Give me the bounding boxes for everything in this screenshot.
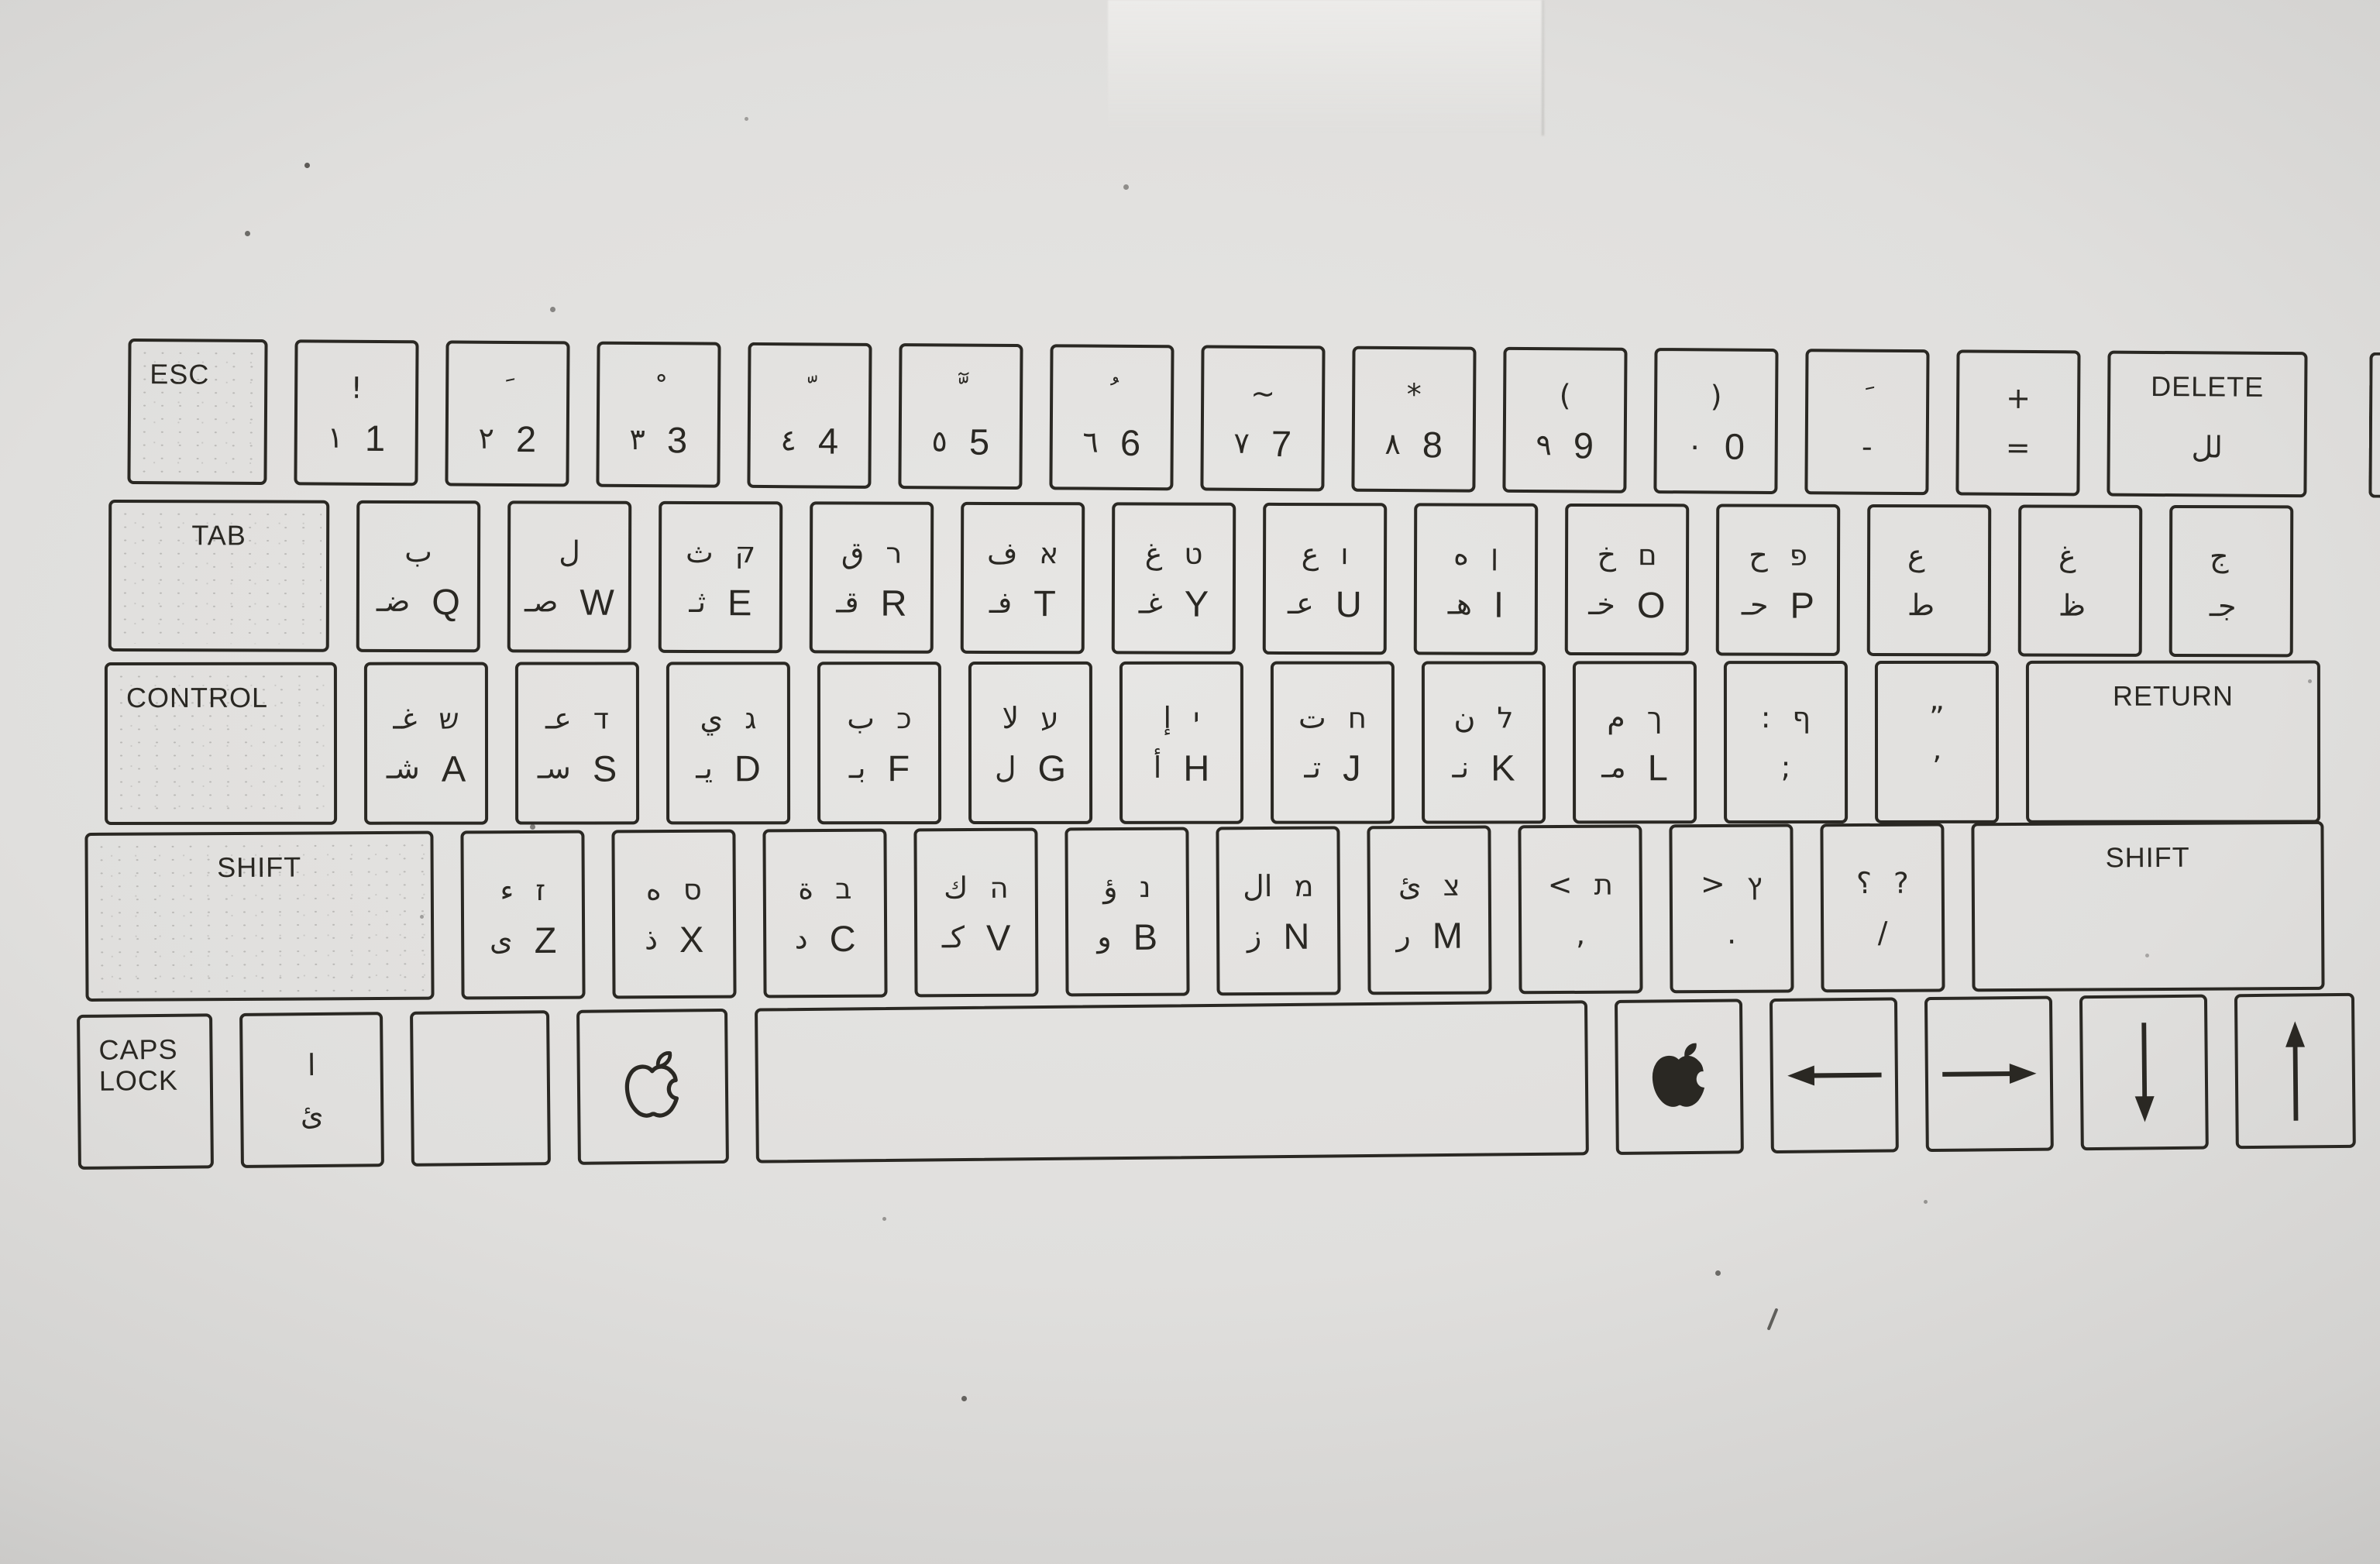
key-top-legends: الמ <box>1219 868 1337 906</box>
key-top-legends: ّٓ <box>902 373 1020 411</box>
key-4: ّ٤4 <box>747 342 872 489</box>
key-right-bracket-bottom-left-legend: ظ <box>2058 591 2086 620</box>
key-top-legends: هס <box>615 871 733 909</box>
key-left-bracket-bottom-left-legend: ط <box>1907 590 1935 620</box>
key-v-bottom-right-legend: V <box>986 919 1011 955</box>
key-l: مךمـL <box>1573 661 1697 823</box>
key-i-bottom-right-legend: I <box>1494 586 1504 622</box>
keyboard-row: ESC!١1 َ٢2 ْ٣3 ّ٤4 ّٓ٥5 ُ٦6~٧7*٨8(٩9)٠0 … <box>127 339 2380 498</box>
key-slash-top-right-legend: ? <box>1893 868 1909 897</box>
key-top-legends: ثק <box>662 534 779 571</box>
key-equals-top-left-legend: + <box>2006 383 2031 413</box>
key-bottom-legends: جـ <box>2172 587 2290 624</box>
key-return: RETURN <box>2026 661 2320 823</box>
key-h-bottom-left-legend: أ <box>1154 753 1162 782</box>
key-6: ُ٦6 <box>1049 344 1174 490</box>
key-top-legends: ئצ <box>1371 867 1488 905</box>
key-5-bottom-right-legend: 5 <box>969 423 989 459</box>
key-comma-bottom-left-legend: , <box>1576 919 1585 949</box>
key-7-top-left-legend: ~ <box>1250 379 1275 408</box>
key-top-legends: + <box>1959 379 2077 417</box>
key-7-bottom-right-legend: 7 <box>1271 425 1291 462</box>
key-alef: ائ <box>239 1012 384 1168</box>
key-top-legends: ( <box>1506 376 1624 414</box>
key-top-legends: هן <box>1417 535 1535 572</box>
key-d: يגيـD <box>666 662 790 824</box>
key-alef-top-left-legend: ا <box>308 1050 316 1080</box>
key-return-label: RETURN <box>2029 681 2317 713</box>
key-top-legends: بכ <box>820 700 938 737</box>
key-5: ّٓ٥5 <box>898 343 1023 490</box>
key-top-legends: غט <box>1115 535 1233 572</box>
keyboard-row: TABبضـQلصـWثקثـEقרقـRفאفـTغטغـYعוعـUهןهـ… <box>108 500 2294 657</box>
key-s-top-left-legend: عـ <box>545 703 572 733</box>
key-a-bottom-left-legend: شـ <box>387 754 420 783</box>
key-bottom-legends: زN <box>1219 917 1337 955</box>
key-arrow-up <box>2234 993 2356 1149</box>
key-bottom-legends: ; <box>1727 748 1845 785</box>
key-delete: DELETEلل <box>2107 351 2307 498</box>
key-m-top-right-legend: צ <box>1443 871 1460 899</box>
key-backslash-top-left-legend: ج <box>2210 541 2229 571</box>
key-arrow-down <box>2079 995 2209 1151</box>
key-2-bottom-left-legend: ٢ <box>478 424 494 453</box>
key-arrow-right <box>1924 996 2054 1153</box>
key-top-legends: َ <box>1808 378 1926 416</box>
key-a: غـשشـA <box>364 662 488 825</box>
key-x-bottom-left-legend: ذ <box>645 924 658 954</box>
key-b-top-right-legend: נ <box>1139 872 1150 901</box>
key-top-legends: قר <box>813 534 930 571</box>
key-bottom-legends: كـV <box>917 919 1035 957</box>
key-v-top-right-legend: ה <box>989 873 1008 902</box>
key-top-legends: ب <box>359 533 477 570</box>
key-caps-lock-label: CAPS LOCK <box>80 1033 210 1097</box>
key-4-bottom-right-legend: 4 <box>818 422 838 459</box>
key-m-bottom-left-legend: ر <box>1396 920 1411 950</box>
key-t-bottom-left-legend: فـ <box>989 588 1012 617</box>
key-l-bottom-right-legend: L <box>1648 749 1668 785</box>
key-bottom-legends: وB <box>1068 918 1186 956</box>
key-x-top-left-legend: ه <box>646 875 662 904</box>
key-bottom-legends: ٦6 <box>1053 423 1171 461</box>
key-top-legends: ّ <box>751 372 868 410</box>
key-x: هסذX <box>611 830 736 999</box>
key-slash-bottom-left-legend: / <box>1878 918 1888 947</box>
key-n-bottom-right-legend: N <box>1283 917 1309 954</box>
key-blank <box>410 1010 551 1167</box>
key-d-bottom-right-legend: D <box>734 750 761 786</box>
key-bottom-legends: ١1 <box>297 418 415 456</box>
key-6-top-left-legend: ُ <box>1107 378 1116 407</box>
key-q: بضـQ <box>356 500 481 652</box>
key-b-bottom-right-legend: B <box>1133 918 1158 954</box>
key-top-legends: ج <box>2172 538 2290 575</box>
key-top-legends: ع <box>1870 537 1988 574</box>
key-c: ةבدC <box>762 829 887 999</box>
key-c-top-right-legend: ב <box>835 874 852 902</box>
key-top-legends: حפ <box>1719 536 1837 573</box>
key-b-top-left-legend: ؤ <box>1103 872 1118 902</box>
key-4-bottom-left-legend: ٤ <box>780 425 796 455</box>
key-top-legends: >ץ <box>1673 864 1790 902</box>
key-2: َ٢2 <box>445 341 569 487</box>
key-f-top-right-legend: כ <box>896 704 912 733</box>
key-bottom-legends: , <box>1522 915 1639 953</box>
key-bottom-legends: ضـQ <box>359 583 477 620</box>
key-f: بכبـF <box>817 662 941 824</box>
key-3-top-left-legend: ْ <box>654 375 663 404</box>
key-quote: ”’ <box>1875 661 1999 823</box>
key-t: فאفـT <box>961 502 1085 654</box>
key-e-top-right-legend: ק <box>735 538 755 567</box>
key-y: غטغـY <box>1112 502 1236 654</box>
key-top-legends: لاע <box>972 700 1089 737</box>
key-bottom-legends: ٢2 <box>449 420 566 458</box>
down-arrow-icon <box>2082 998 2206 1147</box>
key-top-legends: إי <box>1123 700 1240 737</box>
key-o-top-left-legend: خ <box>1597 540 1616 569</box>
key-top-legends: نל <box>1425 699 1543 736</box>
key-equals: += <box>1955 349 2080 496</box>
key-p-bottom-right-legend: P <box>1790 586 1814 623</box>
key-9-bottom-right-legend: 9 <box>1573 427 1594 463</box>
key-8: *٨8 <box>1351 346 1476 493</box>
key-l-bottom-left-legend: مـ <box>1601 752 1626 782</box>
key-bottom-legends: ظ <box>2021 586 2139 624</box>
key-space <box>755 1000 1589 1163</box>
key-semicolon-bottom-left-legend: ; <box>1781 752 1791 782</box>
key-k-bottom-right-legend: K <box>1491 749 1515 785</box>
key-minus-top-left-legend: َ <box>1862 383 1872 412</box>
key-bottom-legends: حـP <box>1719 586 1837 623</box>
key-y-top-left-legend: غ <box>1145 539 1163 569</box>
key-c-bottom-left-legend: د <box>795 923 808 953</box>
key-q-top-left-legend: ب <box>404 537 432 566</box>
key-0-bottom-left-legend: ٠ <box>1687 431 1703 460</box>
key-z-top-left-legend: ء <box>500 875 514 905</box>
key-period: >ץ. <box>1669 823 1794 993</box>
key-2-bottom-right-legend: 2 <box>516 421 536 457</box>
key-1-bottom-left-legend: ١ <box>327 423 343 452</box>
key-shift-left-label: SHIFT <box>88 851 431 885</box>
key-s-bottom-left-legend: سـ <box>538 753 571 782</box>
key-r-bottom-left-legend: قـ <box>836 587 858 617</box>
key-k-top-right-legend: ל <box>1497 703 1513 732</box>
key-y-bottom-left-legend: غـ <box>1139 588 1163 617</box>
key-equals-bottom-left-legend: = <box>2006 433 2031 462</box>
key-bottom-legends: هـI <box>1417 585 1535 622</box>
key-u-bottom-left-legend: عـ <box>1288 589 1314 618</box>
key-partial <box>2368 352 2380 498</box>
key-h-top-right-legend: י <box>1193 703 1199 732</box>
key-3-bottom-left-legend: ٣ <box>629 425 645 454</box>
key-top-legends: ُ <box>1053 373 1171 411</box>
key-top-legends: <ת <box>1522 865 1639 903</box>
key-i: هןهـI <box>1414 503 1539 655</box>
key-bottom-legends: صـW <box>511 583 628 620</box>
solid-apple-icon <box>1618 1002 1741 1151</box>
key-n-top-left-legend: ال <box>1243 871 1272 901</box>
key-l-top-right-legend: ך <box>1647 703 1663 732</box>
key-c-bottom-right-legend: C <box>830 919 856 956</box>
key-shift-right-label: SHIFT <box>1975 841 2321 875</box>
key-0: )٠0 <box>1653 348 1778 494</box>
key-4-top-left-legend: ّ <box>805 376 814 405</box>
key-bottom-legends: ٧7 <box>1204 424 1322 462</box>
key-bottom-legends: ٩9 <box>1506 426 1624 464</box>
key-f-bottom-right-legend: F <box>888 750 910 786</box>
key-n-bottom-left-legend: ز <box>1247 921 1262 950</box>
keyboard-diagram: ESC!١1 َ٢2 ْ٣3 ّ٤4 ّٓ٥5 ُ٦6~٧7*٨8(٩9)٠0 … <box>0 0 2380 1564</box>
key-i-top-left-legend: ه <box>1453 540 1469 569</box>
key-u-top-right-legend: ו <box>1340 540 1348 569</box>
key-7-bottom-left-legend: ٧ <box>1233 428 1250 458</box>
key-b-bottom-left-legend: و <box>1097 922 1112 951</box>
keyboard-row: CONTROLغـשشـAعـדسـSيגيـDبכبـFلاעلGإיأHتח… <box>105 661 2320 825</box>
key-l-top-left-legend: م <box>1607 703 1625 732</box>
key-backslash: ججـ <box>2169 505 2294 657</box>
key-i-top-right-legend: ן <box>1491 540 1498 569</box>
key-top-legends: َ <box>449 370 566 408</box>
key-d-top-left-legend: ي <box>700 703 723 733</box>
key-bottom-legends: سـS <box>518 749 636 786</box>
key-shift-right: SHIFT <box>1971 821 2324 992</box>
key-q-bottom-left-legend: ضـ <box>377 586 411 616</box>
key-x-bottom-right-legend: X <box>679 920 704 957</box>
left-arrow-icon <box>1773 1000 1896 1150</box>
key-f-bottom-left-legend: بـ <box>849 753 866 782</box>
key-k-top-left-legend: ن <box>1453 703 1475 732</box>
key-p: حפحـP <box>1716 504 1841 655</box>
key-top-legends: ل <box>511 533 628 570</box>
key-minus: َ- <box>1804 349 1929 495</box>
key-top-legends: ~ <box>1204 374 1322 412</box>
key-z-bottom-left-legend: ى <box>490 925 513 954</box>
key-slash: ؟?/ <box>1820 823 1945 992</box>
key-r-top-right-legend: ר <box>886 538 902 567</box>
key-bottom-legends: دC <box>766 919 884 957</box>
key-bottom-legends: يـD <box>669 749 787 786</box>
key-bottom-legends: مـL <box>1576 748 1694 785</box>
key-top-legends: :ף <box>1727 699 1845 736</box>
key-bottom-legends: ٠0 <box>1657 427 1775 465</box>
key-top-legends: تח <box>1274 700 1391 737</box>
key-m-top-left-legend: ئ <box>1398 871 1422 900</box>
key-j-bottom-right-legend: J <box>1343 749 1361 785</box>
key-2-top-left-legend: َ <box>503 374 512 404</box>
key-top-legends: مך <box>1576 699 1694 736</box>
key-n-top-right-legend: מ <box>1294 871 1313 900</box>
key-top-legends: ؟? <box>1824 864 1941 902</box>
key-top-legends: كה <box>917 869 1035 907</box>
key-control-label: CONTROL <box>108 682 334 714</box>
key-9-top-left-legend: ( <box>1560 380 1571 410</box>
key-e-top-left-legend: ث <box>686 538 714 567</box>
key-left-bracket: عط <box>1867 504 1992 656</box>
key-w-top-left-legend: ل <box>559 538 580 567</box>
key-9-bottom-left-legend: ٩ <box>1536 430 1552 459</box>
key-bottom-legends: لG <box>972 749 1089 786</box>
key-h: إיأH <box>1119 662 1243 824</box>
key-top-legends: ا <box>242 1046 380 1084</box>
key-d-bottom-left-legend: يـ <box>696 753 713 782</box>
key-period-top-left-legend: > <box>1701 869 1725 899</box>
key-t-bottom-right-legend: T <box>1034 585 1056 621</box>
key-e-bottom-right-legend: E <box>727 584 751 620</box>
key-q-bottom-right-legend: Q <box>432 583 460 620</box>
key-semicolon: :ף; <box>1724 661 1848 823</box>
key-v-bottom-left-legend: كـ <box>942 923 965 952</box>
key-d-top-right-legend: ג <box>745 704 756 733</box>
key-bottom-legends: شـA <box>367 750 485 787</box>
key-z: ءזىZ <box>460 830 585 1000</box>
key-right-bracket: غظ <box>2018 504 2143 656</box>
key-arrow-left <box>1770 997 1899 1153</box>
key-top-legends: ْ <box>600 371 717 409</box>
key-bottom-legends: قـR <box>813 583 930 620</box>
key-bottom-legends: ٥5 <box>902 422 1020 460</box>
open-apple-icon <box>580 1012 726 1162</box>
key-o-bottom-left-legend: خـ <box>1588 590 1615 619</box>
key-bottom-legends: ٤4 <box>751 421 868 459</box>
key-a-top-right-legend: ש <box>439 704 459 733</box>
scan-speckles <box>0 0 2 2</box>
key-shift-left: SHIFT <box>84 831 434 1002</box>
key-esc: ESC <box>127 339 267 485</box>
key-g-bottom-right-legend: G <box>1038 749 1067 785</box>
key-top-legends: عـד <box>518 700 636 737</box>
key-bottom-legends: رM <box>1371 916 1488 954</box>
key-j-top-left-legend: ت <box>1298 703 1326 733</box>
key-bottom-legends: - <box>1808 428 1926 466</box>
key-3: ْ٣3 <box>596 342 721 488</box>
key-control: CONTROL <box>105 662 337 825</box>
keyboard-row: SHIFTءזىZهסذXةבدCكהكـVؤנوBالמزNئצرM<ת,>ץ… <box>84 821 2324 1002</box>
key-bottom-legends: ىZ <box>464 921 582 959</box>
key-z-top-right-legend: ז <box>535 875 545 904</box>
key-quote-bottom-left-legend: ’ <box>1932 752 1941 782</box>
key-x-top-right-legend: ס <box>683 875 702 903</box>
key-z-bottom-right-legend: Z <box>535 921 557 957</box>
key-6-bottom-right-legend: 6 <box>1120 424 1140 460</box>
key-j-top-right-legend: ח <box>1348 703 1367 732</box>
key-p-bottom-left-legend: حـ <box>1742 590 1769 620</box>
key-6-bottom-left-legend: ٦ <box>1082 428 1099 457</box>
key-top-legends: ةב <box>766 870 884 908</box>
key-bottom-legends: أH <box>1123 749 1240 786</box>
key-semicolon-top-right-legend: ף <box>1793 703 1811 732</box>
key-r-top-left-legend: ق <box>841 538 865 567</box>
key-top-legends: غـש <box>367 700 485 737</box>
key-w-bottom-left-legend: صـ <box>524 586 559 616</box>
key-bottom-legends: ’ <box>1878 748 1996 785</box>
key-s-top-right-legend: ד <box>593 704 609 733</box>
key-s: عـדسـS <box>515 662 639 824</box>
key-bottom-legends: نـK <box>1425 748 1543 785</box>
key-v-top-left-legend: ك <box>944 873 968 902</box>
key-bottom-legends: ط <box>1870 586 1988 624</box>
right-arrow-icon <box>1928 999 2051 1149</box>
key-y-top-right-legend: ט <box>1184 539 1202 568</box>
key-g-bottom-left-legend: ل <box>995 753 1016 782</box>
key-f-top-left-legend: ب <box>847 703 875 733</box>
key-bottom-legends: غـY <box>1115 584 1233 621</box>
key-v: كהكـV <box>913 828 1038 998</box>
key-g-top-left-legend: لا <box>1003 703 1020 733</box>
key-t-top-right-legend: א <box>1039 539 1058 568</box>
key-r-bottom-right-legend: R <box>881 584 907 620</box>
key-open-apple <box>576 1009 729 1165</box>
key-c-top-left-legend: ة <box>798 874 813 903</box>
key-top-legends: يג <box>669 700 787 737</box>
key-8-top-left-legend: * <box>1407 380 1422 409</box>
key-7: ~٧7 <box>1200 345 1325 491</box>
key-comma-top-left-legend: < <box>1548 870 1573 899</box>
key-minus-bottom-left-legend: - <box>1862 432 1873 462</box>
key-bottom-legends: عـU <box>1266 585 1384 622</box>
key-8-bottom-right-legend: 8 <box>1422 426 1443 462</box>
key-slash-top-left-legend: ؟ <box>1856 868 1872 898</box>
key-w-bottom-right-legend: W <box>580 583 614 620</box>
key-r: قרقـR <box>810 501 934 653</box>
key-top-legends: عו <box>1266 535 1384 572</box>
key-s-bottom-right-legend: S <box>593 750 617 786</box>
key-u-top-left-legend: ع <box>1302 539 1319 569</box>
key-g-top-right-legend: ע <box>1040 703 1058 732</box>
key-o-bottom-right-legend: O <box>1637 586 1666 623</box>
key-n: الמزN <box>1216 827 1340 996</box>
key-bottom-legends: بـF <box>820 749 938 786</box>
key-j-bottom-left-legend: تـ <box>1304 753 1321 782</box>
key-p-top-right-legend: פ <box>1790 541 1807 569</box>
key-bottom-legends: = <box>1959 428 2077 466</box>
key-bottom-legends: ثـE <box>662 583 779 620</box>
key-top-legends: غ <box>2021 537 2139 574</box>
key-semicolon-top-left-legend: : <box>1761 703 1771 732</box>
key-a-top-left-legend: غـ <box>393 704 417 734</box>
key-quote-top-left-legend: ” <box>1929 703 1945 732</box>
key-period-bottom-left-legend: . <box>1727 919 1736 948</box>
key-9: (٩9 <box>1502 347 1627 493</box>
key-k-bottom-left-legend: نـ <box>1452 752 1469 782</box>
key-8-bottom-left-legend: ٨ <box>1384 429 1401 459</box>
key-1: !١1 <box>294 339 418 486</box>
key-delete-label: DELETE <box>2110 371 2304 404</box>
key-delete-sublabel: لل <box>2110 430 2304 466</box>
key-5-bottom-left-legend: ٥ <box>931 426 948 455</box>
key-top-legends: ) <box>1657 377 1775 415</box>
key-top-legends: ؤנ <box>1068 868 1186 906</box>
scanned-page: ESC!١1 َ٢2 ْ٣3 ّ٤4 ّٓ٥5 ُ٦6~٧7*٨8(٩9)٠0 … <box>0 0 2380 1564</box>
key-o-top-right-legend: ם <box>1638 541 1657 569</box>
key-g: لاעلG <box>968 662 1092 824</box>
key-bottom-legends: . <box>1673 914 1790 952</box>
key-period-top-right-legend: ץ <box>1747 869 1763 898</box>
key-1-top-left-legend: ! <box>350 373 362 403</box>
key-bottom-legends: فـT <box>964 584 1082 621</box>
key-bottom-legends: خـO <box>1568 586 1686 623</box>
key-backslash-bottom-left-legend: جـ <box>2210 591 2237 620</box>
key-5-top-left-legend: ّٓ <box>956 377 965 407</box>
key-top-legends: فא <box>964 535 1082 572</box>
key-j: تחتـJ <box>1271 662 1395 824</box>
key-0-top-left-legend: ) <box>1711 381 1722 411</box>
key-tab: TAB <box>108 500 330 652</box>
key-left-bracket-top-left-legend: ع <box>1907 541 1925 570</box>
key-h-bottom-right-legend: H <box>1183 749 1209 785</box>
key-w: لصـW <box>507 500 632 652</box>
